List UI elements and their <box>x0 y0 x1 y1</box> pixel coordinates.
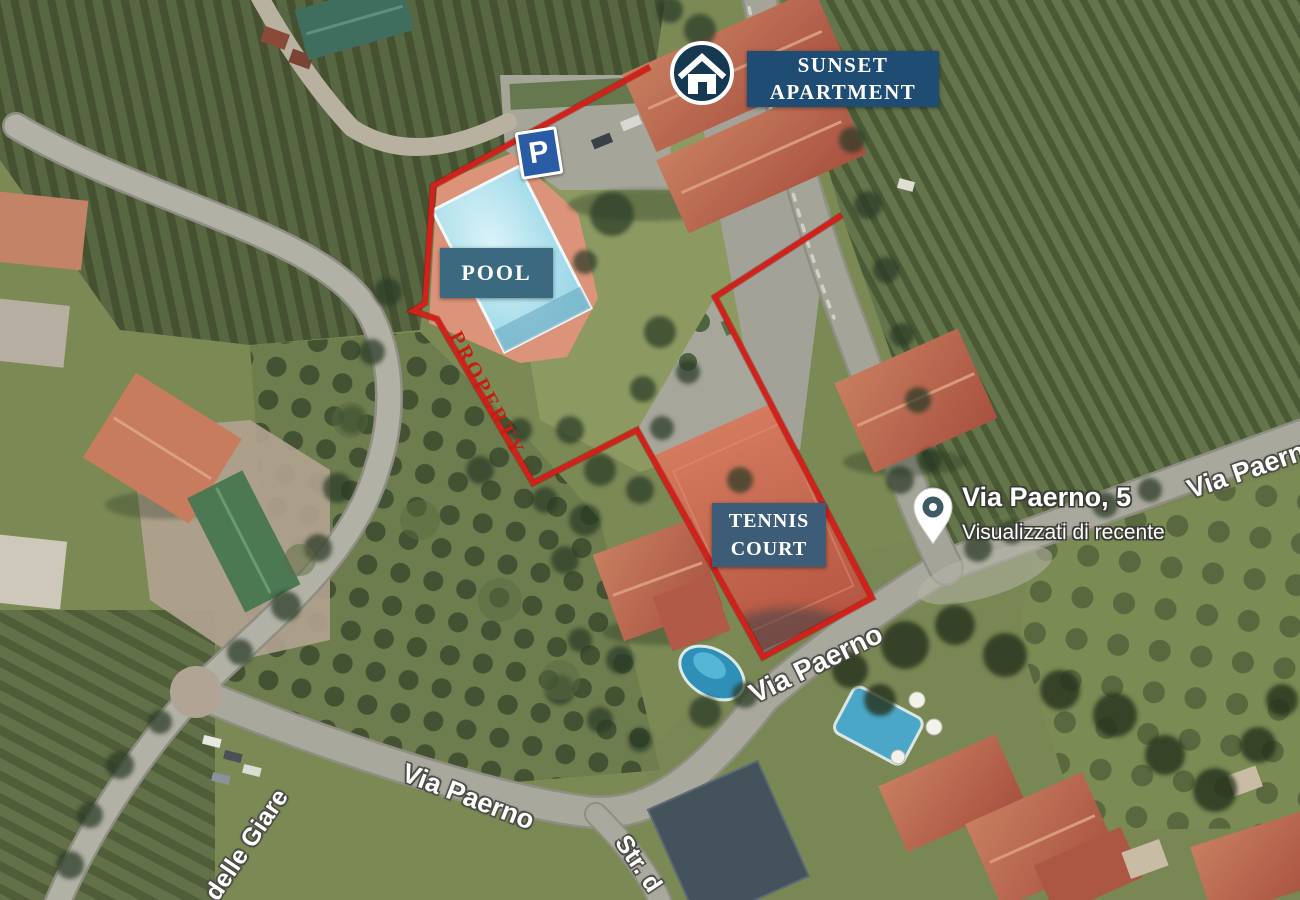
apartment-label-line2: APARTMENT <box>770 79 917 106</box>
pool-label: POOL <box>440 248 553 298</box>
pool-label-text: POOL <box>461 260 531 286</box>
tennis-court-label: TENNIS COURT <box>712 503 826 567</box>
tennis-label-line2: COURT <box>731 535 808 563</box>
pin-address: Via Paerno, 5 <box>962 482 1131 513</box>
satellite-imagery <box>0 0 1300 900</box>
pin-subtitle: Visualizzati di recente <box>962 521 1165 545</box>
tennis-label-line1: TENNIS <box>729 507 809 535</box>
house-icon <box>667 38 737 108</box>
apartment-label: SUNSET APARTMENT <box>747 51 939 107</box>
apartment-label-line1: SUNSET <box>798 52 889 79</box>
satellite-map: SUNSET APARTMENT POOL TENNIS COURT PROPE… <box>0 0 1300 900</box>
parking-sign: P <box>515 126 564 180</box>
map-pin-icon <box>910 486 956 548</box>
